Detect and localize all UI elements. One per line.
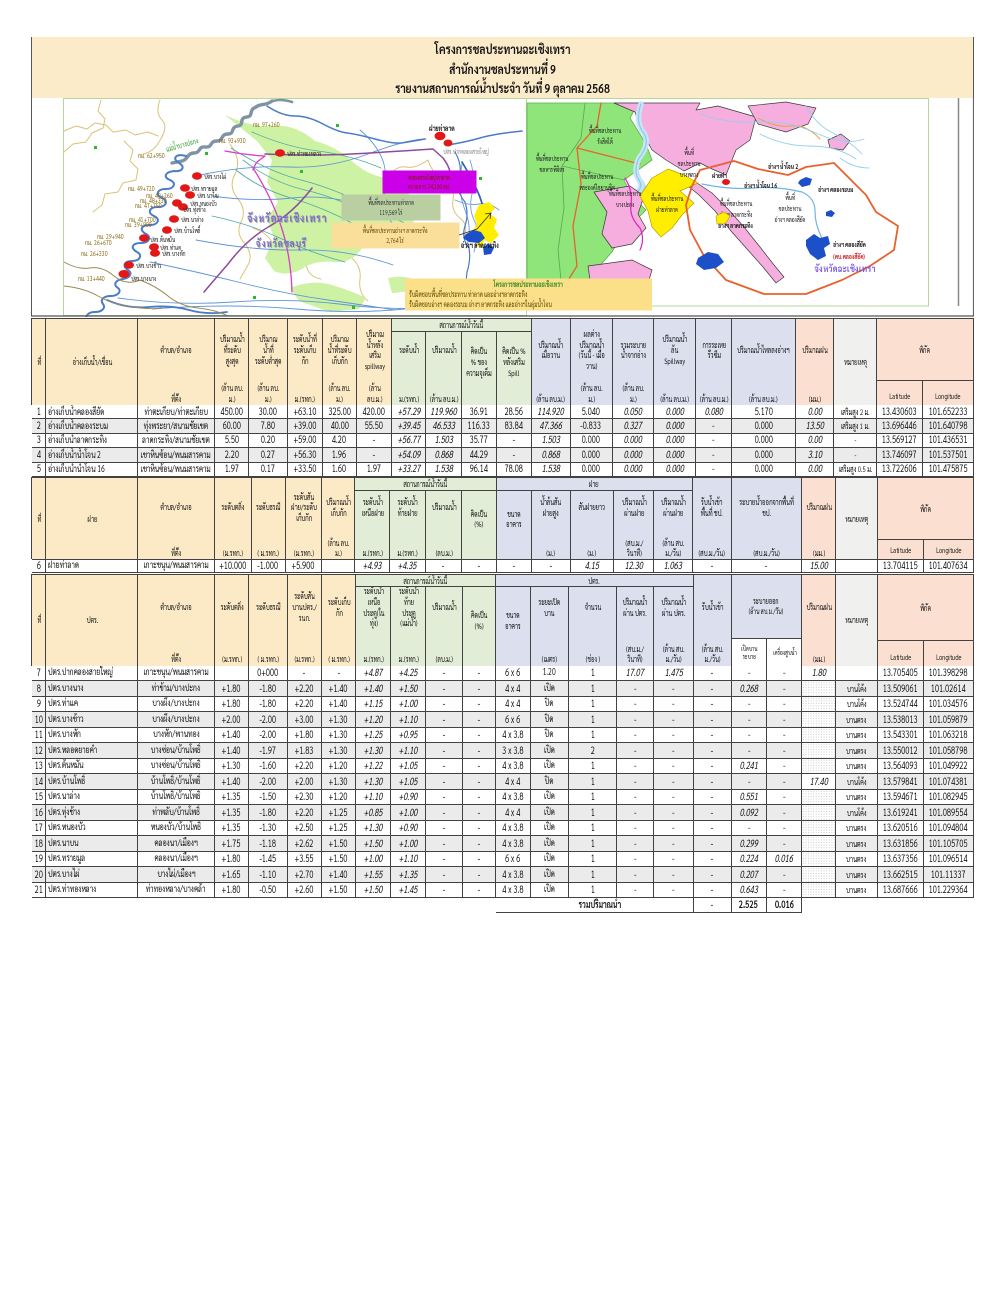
svg-text:กม. 62+950: กม. 62+950 xyxy=(138,152,165,160)
svg-text:อ่างฯ ลาดกระทิง: อ่างฯ ลาดกระทิง xyxy=(460,240,499,250)
svg-text:รับผิดชอบอ่างฯ คลองระบม อ่างฯ: รับผิดชอบอ่างฯ คลองระบม อ่างฯ ลาดกระทิง … xyxy=(409,298,552,311)
svg-text:ปตร.ท่าทองหลาง: ปตร.ท่าทองหลาง xyxy=(287,148,321,158)
svg-text:ปตร.ต้นหมัน: ปตร.ต้นหมัน xyxy=(150,234,175,244)
svg-text:ปตร.บางหัก: ปตร.บางหัก xyxy=(162,249,185,258)
svg-text:จังหวัดชลบุรี: จังหวัดชลบุรี xyxy=(256,237,307,250)
svg-text:ปตร.ปากคลองสายใหญ่: ปตร.ปากคลองสายใหญ่ xyxy=(443,146,489,156)
svg-text:กม. 39+900: กม. 39+900 xyxy=(125,221,152,229)
svg-text:ปตร.บางข้าว: ปตร.บางข้าว xyxy=(136,260,161,270)
svg-text:ชลประทาน: ชลประทาน xyxy=(779,204,802,213)
svg-text:ปตร.นาบน: ปตร.นาบน xyxy=(197,191,219,200)
svg-text:อ่างฯ คลองสียัด: อ่างฯ คลองสียัด xyxy=(832,239,866,249)
svg-text:รับผิดชอบพื้นที่ชลประทาน ท่าลา: รับผิดชอบพื้นที่ชลประทาน ท่าลาด และอ่างฯ… xyxy=(409,288,527,299)
svg-text:กม. 97+260: กม. 97+260 xyxy=(253,121,280,129)
svg-text:อ่างฯ น้ำโจน 2: อ่างฯ น้ำโจน 2 xyxy=(767,160,798,171)
svg-text:กม. 26+670: กม. 26+670 xyxy=(85,239,112,247)
svg-text:(คบ.คลองสียัด): (คบ.คลองสียัด) xyxy=(833,251,865,261)
svg-text:ปตร.นาล่าง: ปตร.นาล่าง xyxy=(181,214,204,224)
svg-text:ความยาว 34,100 กม.: ความยาว 34,100 กม. xyxy=(408,183,451,191)
svg-text:ฝายท่าลาด: ฝายท่าลาด xyxy=(656,204,678,214)
svg-text:ปตร.บางนาง: ปตร.บางนาง xyxy=(131,274,156,283)
svg-text:กม. 93+930: กม. 93+930 xyxy=(219,137,246,145)
svg-text:119,569 ไร่: 119,569 ไร่ xyxy=(380,207,404,217)
svg-text:2,764 ไร่: 2,764 ไร่ xyxy=(386,235,404,245)
svg-text:อ่างฯ คลองสียัด: อ่างฯ คลองสียัด xyxy=(774,214,806,224)
svg-text:บางพลวง: บางพลวง xyxy=(680,171,699,179)
svg-text:อ่างฯ คลองระบม: อ่างฯ คลองระบม xyxy=(817,185,853,194)
svg-text:โครงการชลประทานฉะเชิงเทรา: โครงการชลประทานฉะเชิงเทรา xyxy=(493,279,563,289)
svg-text:ปตร.ทุ่งช้าง: ปตร.ทุ่งช้าง xyxy=(183,204,206,215)
svg-text:จังหวัดฉะเชิงเทรา: จังหวัดฉะเชิงเทรา xyxy=(814,262,876,274)
svg-text:กม. 47+750: กม. 47+750 xyxy=(135,202,162,210)
svg-text:กม. 13+440: กม. 13+440 xyxy=(78,275,105,283)
svg-text:ชลหารพิจิตร: ชลหารพิจิตร xyxy=(539,164,565,174)
svg-text:จังหวัดฉะเชิงเทรา: จังหวัดฉะเชิงเทรา xyxy=(247,211,327,225)
svg-text:บางปะกง: บางปะกง xyxy=(616,200,635,209)
svg-text:ฝายท่า: ฝายท่า xyxy=(712,171,727,180)
svg-text:ปตร.บางไผ่: ปตร.บางไผ่ xyxy=(204,171,226,181)
svg-text:ชลประทาน: ชลประทาน xyxy=(678,159,701,168)
svg-text:ฝายท่าลาด: ฝายท่าลาด xyxy=(429,123,454,133)
svg-text:คลองสายใหญ่ท่าลาด: คลองสายใหญ่ท่าลาด xyxy=(408,172,450,182)
svg-text:รังสิตใต้: รังสิตใต้ xyxy=(597,136,613,146)
svg-text:กม. 26+330: กม. 26+330 xyxy=(81,250,108,258)
svg-text:อ่างฯ น้ำโจน 16: อ่างฯ น้ำโจน 16 xyxy=(743,179,777,190)
